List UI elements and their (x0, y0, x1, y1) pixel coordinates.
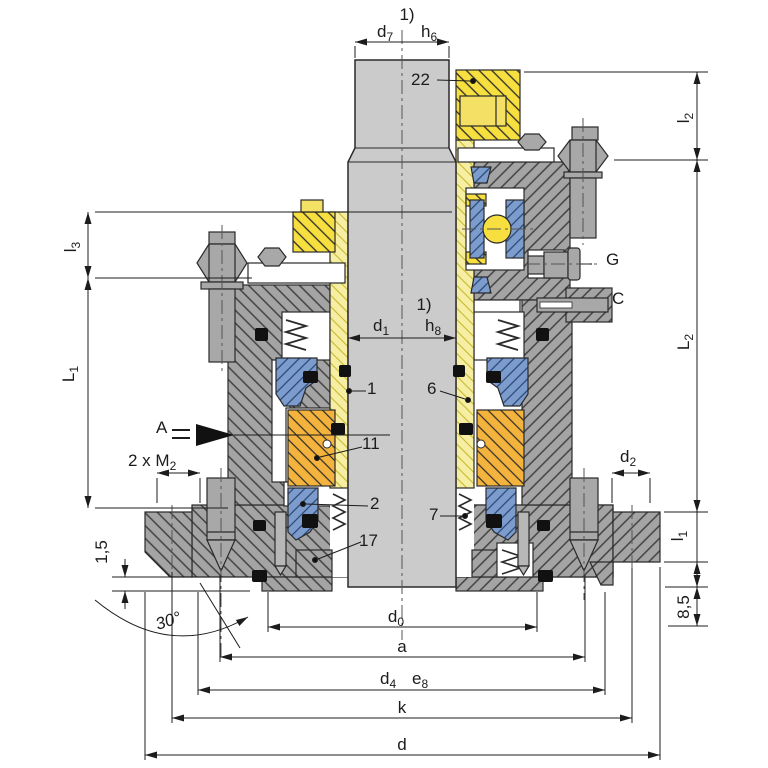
dim-label-L2: L2 (674, 334, 696, 350)
section-letter-A: A (156, 418, 168, 437)
seal-cross-section-drawing: 1) d7 h6 1) d1 h8 22 1 6 11 2 7 17 A G C… (0, 0, 768, 768)
part-label-2: 2 (370, 494, 379, 513)
footnote-mid: 1) (416, 295, 431, 314)
dim-label-l2: l2 (674, 112, 696, 123)
part-label-17: 17 (359, 531, 378, 550)
seal-face-ring-left (288, 410, 335, 486)
flange-wing-left (145, 512, 192, 577)
dim-label-k: k (398, 698, 407, 717)
dim-label-a: a (397, 637, 407, 656)
dim-label-1-5: 1,5 (92, 540, 111, 564)
part-label-7: 7 (429, 505, 438, 524)
dim-label-l1: l1 (668, 530, 690, 541)
dim-label-l3: l3 (61, 241, 83, 252)
seal-face-ring-right (477, 410, 524, 486)
dim-label-d7: d7 (377, 22, 393, 44)
throttle-ring-left (296, 550, 332, 577)
dim-label-d4: d4 (380, 669, 396, 691)
footnote-top: 1) (399, 5, 414, 24)
connection-label-C: C (612, 289, 624, 308)
dim-label-8-5: 8,5 (674, 595, 693, 619)
collar-set-screw (460, 96, 506, 126)
connection-label-G: G (606, 250, 619, 269)
flange-wing-right (613, 512, 660, 562)
spacer-plate-left (248, 263, 345, 283)
angle-label-30: 30° (153, 608, 184, 634)
cylindrical-pin (537, 298, 608, 312)
part-label-6: 6 (427, 379, 436, 398)
part-label-1: 1 (367, 379, 376, 398)
dowel-pin-right (518, 512, 529, 575)
dim-label-2xM2: 2 x M2 (128, 451, 177, 473)
small-hex-screw-left (258, 248, 286, 266)
dim-label-d2: d2 (620, 447, 636, 469)
dim-label-h6: h6 (421, 22, 437, 44)
dim-label-e8: e8 (412, 669, 428, 691)
small-hex-screw-right (518, 134, 546, 150)
dim-label-L1: L1 (59, 366, 81, 382)
part-label-11: 11 (362, 434, 380, 453)
dim-label-d: d (397, 735, 406, 754)
technical-drawing-page: 1) d7 h6 1) d1 h8 22 1 6 11 2 7 17 A G C… (0, 0, 768, 768)
part-label-22: 22 (411, 70, 430, 89)
dowel-pin-left (275, 512, 286, 575)
clamp-screw (301, 200, 323, 212)
